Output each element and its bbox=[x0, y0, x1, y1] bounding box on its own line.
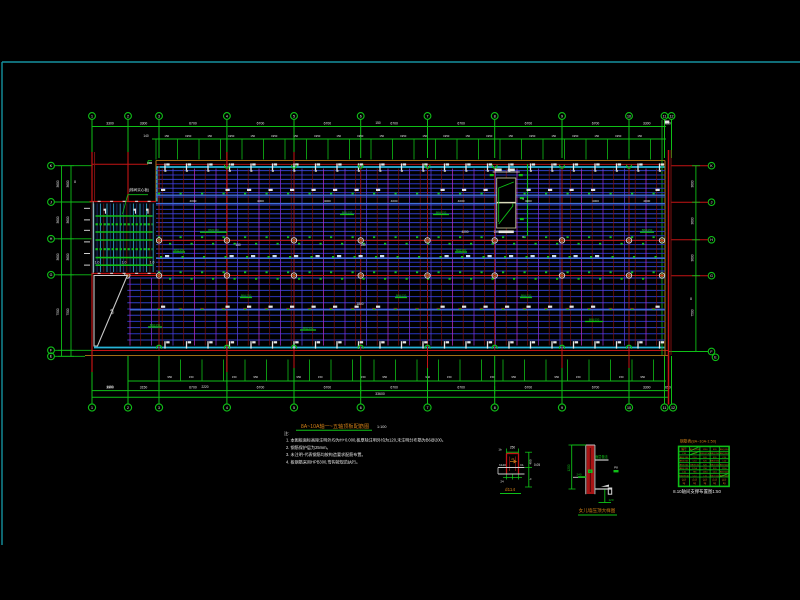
svg-text:1b: 1b bbox=[498, 448, 502, 452]
svg-text:150: 150 bbox=[576, 375, 581, 379]
svg-text:3300: 3300 bbox=[106, 121, 114, 125]
svg-text:11: 11 bbox=[663, 406, 667, 410]
svg-text:150: 150 bbox=[551, 134, 556, 138]
svg-text:140: 140 bbox=[143, 134, 149, 138]
svg-text:12: 12 bbox=[671, 406, 675, 410]
svg-text:1950: 1950 bbox=[271, 134, 278, 138]
svg-text:950: 950 bbox=[511, 375, 516, 379]
svg-text:P8: P8 bbox=[614, 466, 618, 470]
svg-text:B8@150: B8@150 bbox=[174, 248, 185, 252]
svg-text:150: 150 bbox=[207, 134, 212, 138]
svg-text:6700: 6700 bbox=[257, 385, 265, 389]
svg-text:B10@150: B10@150 bbox=[700, 453, 711, 455]
svg-text:150: 150 bbox=[360, 243, 366, 247]
svg-text:1950: 1950 bbox=[185, 134, 192, 138]
svg-text:4000: 4000 bbox=[391, 199, 398, 203]
svg-text:150: 150 bbox=[164, 134, 169, 138]
svg-text:3150: 3150 bbox=[140, 385, 148, 389]
svg-text:7500: 7500 bbox=[56, 308, 60, 315]
svg-text:B8@150: B8@150 bbox=[396, 294, 407, 298]
svg-text:950: 950 bbox=[640, 375, 645, 379]
svg-text:150: 150 bbox=[293, 134, 298, 138]
svg-text:B8@150: B8@150 bbox=[456, 248, 467, 252]
svg-text:J: J bbox=[50, 200, 52, 204]
svg-text:2. 钢筋保护层为25mm。: 2. 钢筋保护层为25mm。 bbox=[286, 444, 331, 450]
svg-text:3600: 3600 bbox=[56, 180, 60, 187]
svg-text:B8@150: B8@150 bbox=[150, 323, 161, 327]
svg-text:150: 150 bbox=[375, 121, 381, 125]
svg-text:6700: 6700 bbox=[592, 385, 600, 389]
svg-text:B8@200: B8@200 bbox=[720, 464, 729, 466]
svg-text:1250: 1250 bbox=[703, 472, 709, 474]
svg-text:B8@200: B8@200 bbox=[720, 472, 729, 474]
svg-text:1250: 1250 bbox=[703, 449, 709, 451]
svg-text:1950: 1950 bbox=[314, 134, 321, 138]
svg-text:150: 150 bbox=[594, 134, 599, 138]
svg-text:150: 150 bbox=[422, 134, 427, 138]
svg-text:3600: 3600 bbox=[691, 180, 695, 187]
svg-text:150: 150 bbox=[508, 134, 513, 138]
svg-text:150: 150 bbox=[447, 375, 452, 379]
svg-text:1: 1 bbox=[91, 114, 93, 118]
svg-text:B8@150: B8@150 bbox=[690, 464, 699, 466]
svg-text:h120: h120 bbox=[499, 463, 506, 467]
svg-text:950: 950 bbox=[167, 375, 172, 379]
svg-text:150: 150 bbox=[318, 375, 323, 379]
svg-text:3. 未注明-代表钢筋均按构造要求配筋布置。: 3. 未注明-代表钢筋均按构造要求配筋布置。 bbox=[286, 451, 366, 457]
svg-text:150: 150 bbox=[336, 134, 341, 138]
svg-text:1.0: 1.0 bbox=[95, 261, 100, 265]
svg-text:B8@150: B8@150 bbox=[710, 475, 719, 477]
svg-text:d114: d114 bbox=[505, 487, 516, 493]
svg-text:2: 2 bbox=[127, 406, 129, 410]
svg-text:3: 3 bbox=[158, 406, 160, 410]
svg-text:8A~10A轴一~五轴顶板配筋图: 8A~10A轴一~五轴顶板配筋图 bbox=[301, 422, 369, 430]
svg-text:10: 10 bbox=[627, 406, 631, 410]
svg-text:B8@200: B8@200 bbox=[720, 475, 729, 477]
svg-text:B8@150: B8@150 bbox=[303, 326, 314, 330]
svg-text:150: 150 bbox=[361, 375, 366, 379]
svg-text:1: 1 bbox=[91, 406, 93, 410]
svg-text:1250: 1250 bbox=[692, 468, 698, 470]
svg-text:(梯间实心板): (梯间实心板) bbox=[129, 187, 149, 192]
svg-text:9: 9 bbox=[561, 406, 563, 410]
svg-text:3600: 3600 bbox=[691, 254, 695, 261]
svg-text:150: 150 bbox=[379, 134, 384, 138]
svg-text:7: 7 bbox=[427, 406, 429, 410]
svg-text:150: 150 bbox=[189, 375, 194, 379]
svg-text:6700: 6700 bbox=[189, 121, 197, 125]
svg-text:6: 6 bbox=[360, 114, 362, 118]
svg-text:女儿墙压顶大样图: 女儿墙压顶大样图 bbox=[579, 507, 616, 514]
svg-text:11: 11 bbox=[663, 114, 667, 118]
svg-text:6700: 6700 bbox=[324, 385, 332, 389]
svg-text:150: 150 bbox=[232, 375, 237, 379]
svg-text:B8@200: B8@200 bbox=[680, 464, 689, 466]
svg-text:B8@150: B8@150 bbox=[241, 294, 252, 298]
svg-text:1.0: 1.0 bbox=[150, 261, 155, 265]
svg-text:120: 120 bbox=[608, 498, 613, 502]
svg-text:24: 24 bbox=[500, 480, 504, 484]
svg-text:3600: 3600 bbox=[66, 253, 70, 260]
svg-text:3300: 3300 bbox=[643, 121, 651, 125]
svg-text:8: 8 bbox=[494, 406, 496, 410]
svg-text:钢筋表(8A~10A-1:50): 钢筋表(8A~10A-1:50) bbox=[680, 438, 717, 443]
svg-text:1.0: 1.0 bbox=[122, 261, 127, 265]
svg-text:4000: 4000 bbox=[592, 199, 599, 203]
svg-text:4000: 4000 bbox=[324, 199, 331, 203]
svg-text:1. 本图板面标高除注明外均为H+0.000,板厚除注明外均: 1. 本图板面标高除注明外均为H+0.000,板厚除注明外均为120,未注明分布… bbox=[286, 436, 446, 442]
svg-text:1950: 1950 bbox=[228, 134, 235, 138]
svg-text:8: 8 bbox=[74, 180, 76, 184]
svg-text:950: 950 bbox=[554, 375, 559, 379]
svg-text:B8@200: B8@200 bbox=[680, 461, 689, 463]
svg-text:B8@150: B8@150 bbox=[720, 449, 729, 451]
svg-text:7500: 7500 bbox=[66, 308, 70, 315]
svg-text:3600: 3600 bbox=[66, 180, 70, 187]
svg-text:5: 5 bbox=[293, 114, 295, 118]
svg-text:0.05: 0.05 bbox=[534, 463, 540, 467]
svg-text:4. 板钢筋采用HPB300,弯钩按规范执行。: 4. 板钢筋采用HPB300,弯钩按规范执行。 bbox=[286, 459, 360, 465]
svg-text:合计: 合计 bbox=[703, 478, 708, 482]
svg-text:250: 250 bbox=[510, 445, 516, 449]
svg-text:B8@150: B8@150 bbox=[710, 464, 719, 466]
svg-text:G: G bbox=[710, 274, 713, 278]
svg-text:B8@150: B8@150 bbox=[521, 294, 532, 298]
svg-text:B8@150: B8@150 bbox=[710, 453, 719, 455]
svg-text:J: J bbox=[711, 201, 713, 205]
svg-text:2: 2 bbox=[127, 114, 129, 118]
svg-text:150: 150 bbox=[465, 134, 470, 138]
svg-text:240: 240 bbox=[576, 473, 581, 477]
svg-text:1650: 1650 bbox=[106, 385, 113, 389]
svg-text:1250: 1250 bbox=[722, 468, 728, 470]
svg-text:6700: 6700 bbox=[390, 385, 398, 389]
svg-text:950: 950 bbox=[382, 375, 387, 379]
svg-text:B10@150: B10@150 bbox=[690, 449, 701, 451]
svg-text:950: 950 bbox=[253, 375, 258, 379]
svg-text:4000: 4000 bbox=[461, 230, 468, 234]
svg-text:2b: 2b bbox=[511, 457, 515, 461]
svg-text:1950: 1950 bbox=[400, 134, 407, 138]
svg-text:4000: 4000 bbox=[643, 199, 650, 203]
svg-text:8: 8 bbox=[690, 297, 692, 301]
svg-text:3600: 3600 bbox=[56, 216, 60, 223]
svg-text:2220: 2220 bbox=[201, 385, 208, 389]
svg-text:H: H bbox=[50, 237, 53, 241]
svg-text:6700: 6700 bbox=[525, 385, 533, 389]
svg-text:4000: 4000 bbox=[257, 199, 264, 203]
svg-text:950: 950 bbox=[296, 375, 301, 379]
svg-text:6700: 6700 bbox=[324, 121, 332, 125]
svg-text:6700: 6700 bbox=[525, 121, 533, 125]
svg-text:合计: 合计 bbox=[692, 478, 697, 482]
svg-text:3300: 3300 bbox=[643, 385, 651, 389]
svg-text:4000: 4000 bbox=[525, 199, 532, 203]
svg-text:3: 3 bbox=[158, 114, 160, 118]
svg-text:4000: 4000 bbox=[458, 199, 465, 203]
svg-text:合计: 合计 bbox=[682, 478, 687, 482]
svg-text:B8@150: B8@150 bbox=[342, 211, 353, 215]
svg-text:4: 4 bbox=[226, 406, 228, 410]
svg-text:1800: 1800 bbox=[356, 302, 363, 306]
svg-text:6700: 6700 bbox=[257, 121, 265, 125]
svg-text:7: 7 bbox=[427, 114, 429, 118]
svg-text:1950: 1950 bbox=[486, 134, 493, 138]
svg-text:B8@150: B8@150 bbox=[642, 228, 653, 232]
svg-text:6700: 6700 bbox=[457, 121, 465, 125]
svg-text:1200: 1200 bbox=[567, 464, 571, 471]
svg-text:1950: 1950 bbox=[443, 134, 450, 138]
svg-text:1950: 1950 bbox=[529, 134, 536, 138]
svg-text:4000: 4000 bbox=[190, 199, 197, 203]
svg-text:合计: 合计 bbox=[722, 478, 727, 482]
svg-text:33600: 33600 bbox=[375, 392, 385, 396]
svg-text:B8@150: B8@150 bbox=[589, 318, 600, 322]
svg-text:B8@200: B8@200 bbox=[720, 453, 729, 455]
svg-text:8.10轴间支撑布置图1:50: 8.10轴间支撑布置图1:50 bbox=[673, 488, 721, 495]
svg-text:3600: 3600 bbox=[66, 216, 70, 223]
svg-text:1950: 1950 bbox=[357, 134, 364, 138]
svg-text:1950: 1950 bbox=[572, 134, 579, 138]
svg-text:3300: 3300 bbox=[140, 121, 148, 125]
svg-text:B8@150: B8@150 bbox=[208, 228, 219, 232]
svg-text:4: 4 bbox=[226, 114, 228, 118]
svg-text:9: 9 bbox=[561, 114, 563, 118]
svg-text:3600: 3600 bbox=[56, 253, 60, 260]
svg-text:150: 150 bbox=[619, 375, 624, 379]
svg-text:6700: 6700 bbox=[390, 121, 398, 125]
svg-text:6700: 6700 bbox=[457, 385, 465, 389]
svg-text:面层做法: 面层做法 bbox=[595, 454, 608, 459]
svg-text:10: 10 bbox=[627, 114, 631, 118]
svg-text:1950: 1950 bbox=[615, 134, 622, 138]
svg-text:B10@150: B10@150 bbox=[679, 475, 690, 477]
svg-text:400: 400 bbox=[529, 459, 533, 464]
svg-text:6700: 6700 bbox=[189, 385, 197, 389]
svg-text:B8@150: B8@150 bbox=[436, 211, 447, 215]
svg-text:5: 5 bbox=[293, 406, 295, 410]
svg-text:1:100: 1:100 bbox=[377, 425, 387, 429]
svg-text:150: 150 bbox=[235, 243, 241, 247]
svg-text:6700: 6700 bbox=[592, 121, 600, 125]
svg-text:8: 8 bbox=[494, 114, 496, 118]
svg-text:G: G bbox=[50, 273, 53, 277]
svg-text:3600: 3600 bbox=[691, 217, 695, 224]
svg-text:7500: 7500 bbox=[691, 309, 695, 316]
svg-text:150: 150 bbox=[637, 134, 642, 138]
svg-text:150: 150 bbox=[250, 134, 255, 138]
svg-text:编号: 编号 bbox=[681, 447, 687, 451]
svg-text:合计: 合计 bbox=[712, 478, 717, 482]
svg-text:B8@150: B8@150 bbox=[680, 468, 689, 470]
svg-text:h1: h1 bbox=[520, 463, 524, 467]
svg-text:B8@150: B8@150 bbox=[710, 461, 719, 463]
svg-text:H: H bbox=[710, 238, 713, 242]
svg-text:6: 6 bbox=[360, 406, 362, 410]
svg-text:12: 12 bbox=[670, 114, 674, 118]
svg-text:B8@150: B8@150 bbox=[680, 457, 689, 459]
svg-text:注:: 注: bbox=[284, 430, 289, 437]
svg-text:1500: 1500 bbox=[493, 230, 500, 234]
